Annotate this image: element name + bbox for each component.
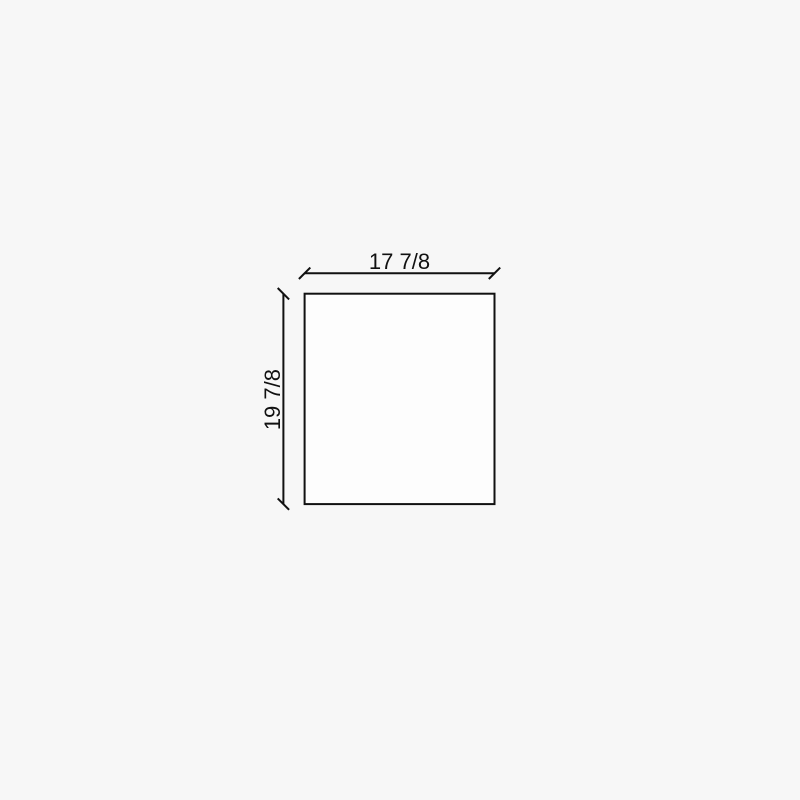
svg-text:19 7/8: 19 7/8 <box>260 369 285 430</box>
svg-text:17 7/8: 17 7/8 <box>369 249 430 274</box>
